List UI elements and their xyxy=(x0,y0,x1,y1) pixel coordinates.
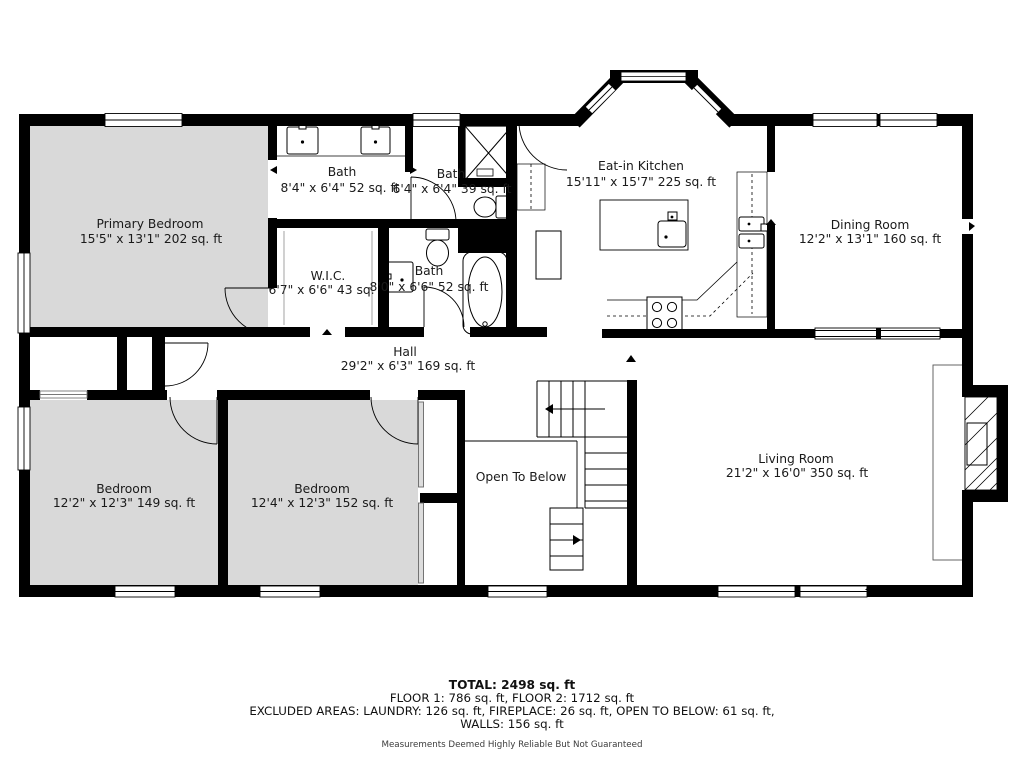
refrigerator-icon xyxy=(536,231,561,279)
room-dims: 12'2" x 12'3" 149 sq. ft xyxy=(53,496,196,510)
door-marker xyxy=(270,166,277,174)
exterior-wall xyxy=(962,114,973,392)
room-label: Bath xyxy=(328,165,357,179)
interior-wall xyxy=(506,126,517,327)
interior-wall xyxy=(420,493,460,503)
interior-wall xyxy=(457,392,465,585)
room-dims: 29'2" x 6'3" 169 sq. ft xyxy=(341,359,476,373)
bay-window xyxy=(575,70,734,123)
disclaimer: Measurements Deemed Highly Reliable But … xyxy=(0,740,1024,750)
shower-icon xyxy=(465,126,512,180)
interior-wall xyxy=(602,329,817,338)
interior-wall xyxy=(19,327,310,337)
window xyxy=(488,586,547,597)
interior-wall xyxy=(405,126,413,172)
room-dims: 15'5" x 13'1" 202 sq. ft xyxy=(80,232,223,246)
floor-plan-page: W.I.C. 6'7" x 6'6" 43 sq. ft xyxy=(0,0,1024,768)
door-arc xyxy=(165,343,208,386)
window xyxy=(260,586,320,597)
interior-wall xyxy=(470,327,547,337)
room-dims: 21'2" x 16'0" 350 sq. ft xyxy=(726,466,869,480)
window xyxy=(18,407,30,470)
window xyxy=(413,114,460,127)
toilet-icon xyxy=(474,196,508,218)
room-dims: 12'4" x 12'3" 152 sq. ft xyxy=(251,496,394,510)
cased-opening xyxy=(815,328,940,339)
window xyxy=(813,114,877,127)
excluded-areas-cont: WALLS: 156 sq. ft xyxy=(0,718,1024,731)
interior-wall xyxy=(268,218,277,288)
sliding-door xyxy=(40,391,87,398)
interior-wall xyxy=(627,380,637,597)
room-label: Hall xyxy=(393,345,417,359)
sliding-door xyxy=(419,402,424,583)
interior-wall xyxy=(218,397,228,585)
room-dims: 6'4" x 6'4" 39 sq. ft xyxy=(393,182,512,196)
window xyxy=(115,586,175,597)
room-label: Bedroom xyxy=(96,482,152,496)
room-dims: 15'11" x 15'7" 225 sq. ft xyxy=(566,175,716,189)
door-marker xyxy=(626,355,636,362)
interior-wall xyxy=(87,390,167,400)
hearth xyxy=(933,365,965,560)
room-dims: 8'4" x 6'4" 52 sq. ft xyxy=(281,181,400,195)
sink-icon xyxy=(361,122,390,154)
sink-icon xyxy=(287,122,318,154)
room-label: Primary Bedroom xyxy=(96,217,203,231)
toilet-icon xyxy=(426,229,449,266)
door-marker xyxy=(410,166,417,174)
range-icon xyxy=(647,297,682,333)
room-label: Eat-in Kitchen xyxy=(598,159,684,173)
window xyxy=(880,114,937,127)
room-label: Dining Room xyxy=(831,218,910,232)
area-summary: TOTAL: 2498 sq. ft FLOOR 1: 786 sq. ft, … xyxy=(0,679,1024,750)
room-dims: 12'2" x 13'1" 160 sq. ft xyxy=(799,232,942,246)
interior-wall xyxy=(268,126,277,160)
kitchen-island xyxy=(600,200,688,250)
door-arc xyxy=(519,122,567,170)
window xyxy=(105,114,182,127)
interior-wall xyxy=(767,225,775,329)
door-marker xyxy=(322,329,332,335)
window xyxy=(718,586,795,597)
wall-mass xyxy=(458,219,512,253)
interior-wall xyxy=(19,390,40,400)
room-label: Bedroom xyxy=(294,482,350,496)
fireplace-icon xyxy=(962,385,1008,502)
room-label: W.I.C. xyxy=(311,269,346,283)
interior-wall xyxy=(378,228,389,327)
room-dims: 8'0" x 6'6" 52 sq. ft xyxy=(370,280,489,294)
exterior-wall xyxy=(19,114,30,597)
interior-wall xyxy=(117,337,127,390)
door-marker xyxy=(766,219,776,225)
interior-wall xyxy=(217,390,370,400)
room-label: Bath xyxy=(437,167,466,181)
counter-edge xyxy=(607,262,737,300)
interior-wall xyxy=(345,327,424,337)
room-label: Living Room xyxy=(758,452,834,466)
interior-wall xyxy=(767,122,775,172)
interior-wall xyxy=(940,329,973,338)
room-label: Open To Below xyxy=(476,470,567,484)
window xyxy=(18,253,30,333)
window xyxy=(800,586,867,597)
room-label: Bath xyxy=(415,264,444,278)
exterior-wall xyxy=(19,114,578,126)
exterior-wall xyxy=(962,492,973,597)
floor-plan-canvas: W.I.C. 6'7" x 6'6" 43 sq. ft xyxy=(0,0,1024,768)
interior-wall xyxy=(152,337,165,390)
